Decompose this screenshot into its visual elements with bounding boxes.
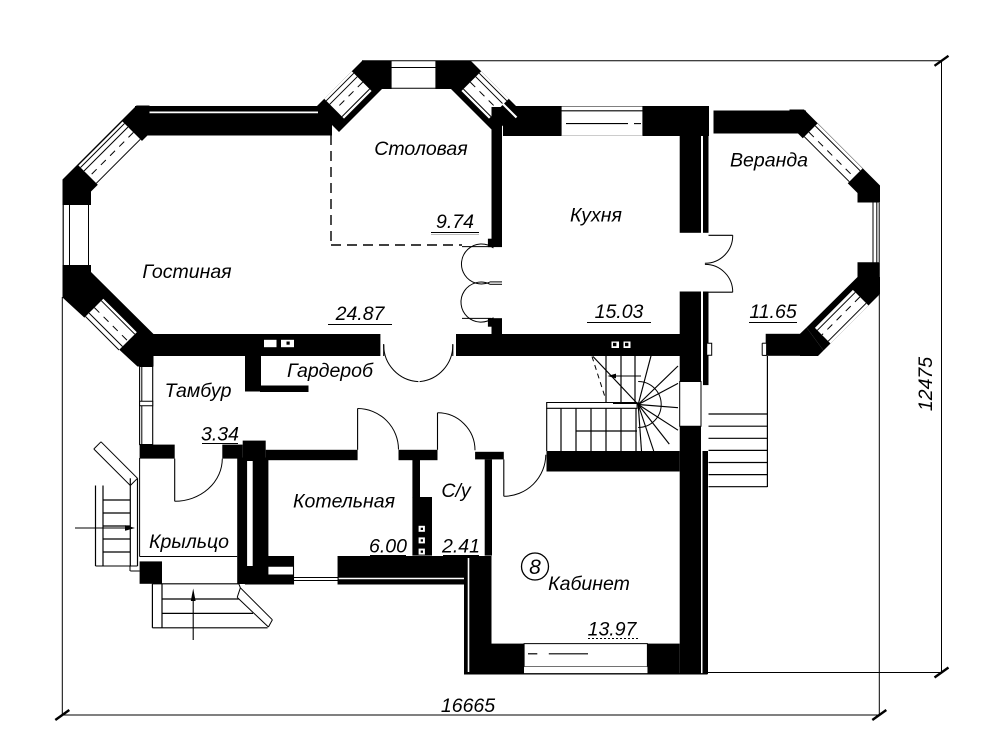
svg-text:13.97: 13.97 — [588, 619, 638, 641]
svg-text:8: 8 — [529, 556, 541, 579]
svg-text:11.65: 11.65 — [749, 301, 797, 323]
svg-text:С/у: С/у — [441, 480, 472, 502]
svg-text:24.87: 24.87 — [335, 303, 386, 325]
svg-text:16665: 16665 — [441, 695, 495, 717]
svg-text:Гостиная: Гостиная — [142, 261, 232, 283]
svg-text:3.34: 3.34 — [201, 424, 239, 446]
svg-text:9.74: 9.74 — [436, 211, 474, 233]
svg-text:Крыльцо: Крыльцо — [149, 531, 229, 553]
svg-text:Гардероб: Гардероб — [287, 360, 374, 382]
svg-text:Кабинет: Кабинет — [548, 573, 630, 595]
svg-text:Столовая: Столовая — [374, 138, 468, 160]
svg-text:2.41: 2.41 — [441, 536, 480, 558]
svg-text:15.03: 15.03 — [595, 301, 644, 323]
svg-text:6.00: 6.00 — [369, 536, 407, 558]
svg-text:Тамбур: Тамбур — [165, 380, 232, 402]
svg-text:12475: 12475 — [915, 357, 937, 411]
svg-text:Веранда: Веранда — [730, 150, 808, 172]
svg-text:Котельная: Котельная — [293, 491, 396, 513]
svg-text:Кухня: Кухня — [570, 205, 623, 227]
